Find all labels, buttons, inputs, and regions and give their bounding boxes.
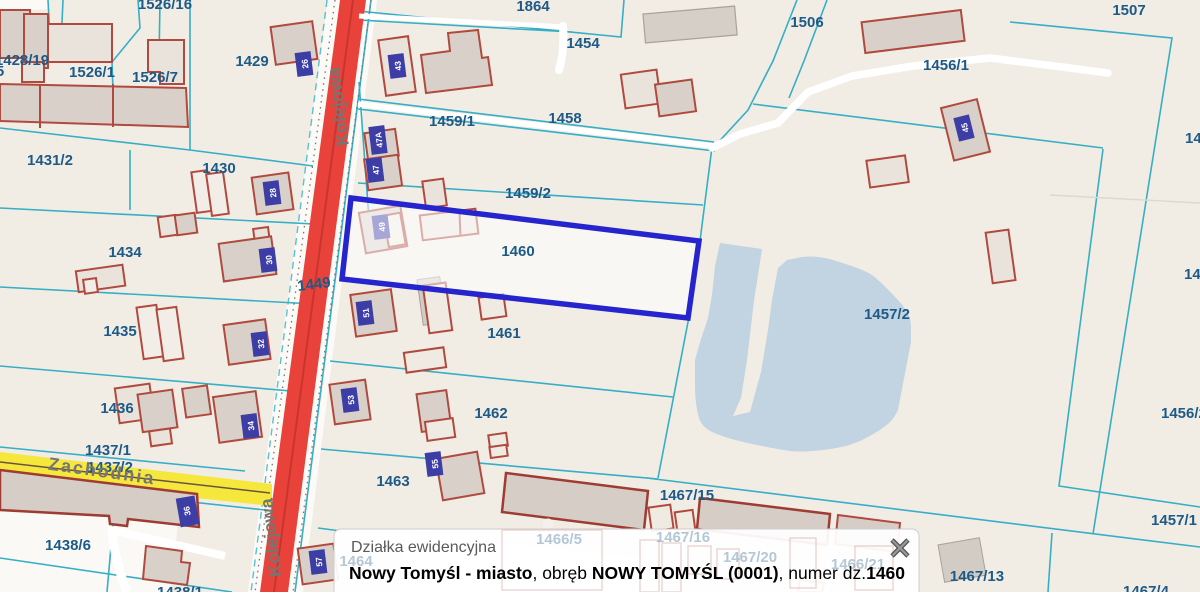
svg-text:55: 55 bbox=[429, 458, 440, 469]
svg-text:1466/5: 1466/5 bbox=[536, 531, 582, 548]
svg-text:1526/1: 1526/1 bbox=[69, 64, 115, 81]
svg-text:Nowy Tomyśl - miasto, obręb NO: Nowy Tomyśl - miasto, obręb NOWY TOMYŚL … bbox=[349, 562, 905, 583]
svg-text:1454: 1454 bbox=[566, 35, 600, 52]
svg-text:1462: 1462 bbox=[474, 405, 507, 422]
svg-text:1467/4: 1467/4 bbox=[1123, 583, 1170, 592]
svg-text:1460: 1460 bbox=[501, 243, 534, 260]
svg-text:1459/2: 1459/2 bbox=[505, 185, 551, 202]
svg-text:1437/1: 1437/1 bbox=[85, 442, 131, 459]
svg-text:1507: 1507 bbox=[1112, 2, 1145, 19]
svg-text:1526/7: 1526/7 bbox=[132, 69, 178, 86]
svg-text:1506: 1506 bbox=[790, 14, 823, 31]
svg-text:1431/2: 1431/2 bbox=[27, 152, 73, 169]
svg-text:1455: 1455 bbox=[1184, 266, 1200, 283]
svg-text:5: 5 bbox=[0, 63, 4, 80]
svg-text:1467/13: 1467/13 bbox=[950, 568, 1004, 585]
svg-text:53: 53 bbox=[345, 394, 356, 405]
svg-text:1457/1: 1457/1 bbox=[1151, 512, 1197, 529]
svg-text:47A: 47A bbox=[373, 132, 385, 149]
svg-text:1463: 1463 bbox=[376, 473, 409, 490]
svg-text:1461: 1461 bbox=[487, 325, 520, 342]
svg-text:26: 26 bbox=[299, 58, 310, 69]
svg-text:1864: 1864 bbox=[516, 0, 550, 15]
svg-text:1438/6: 1438/6 bbox=[45, 537, 91, 554]
svg-text:28: 28 bbox=[267, 187, 278, 198]
svg-text:1435: 1435 bbox=[103, 323, 136, 340]
svg-text:1456/1: 1456/1 bbox=[923, 57, 969, 74]
svg-text:1459/1: 1459/1 bbox=[429, 113, 475, 130]
svg-text:1456/2: 1456/2 bbox=[1161, 405, 1200, 422]
svg-text:1526/16: 1526/16 bbox=[138, 0, 192, 13]
svg-text:30: 30 bbox=[263, 254, 274, 265]
svg-text:1458: 1458 bbox=[548, 110, 581, 127]
svg-text:Działka ewidencyjna: Działka ewidencyjna bbox=[351, 539, 496, 556]
svg-text:1457/2: 1457/2 bbox=[864, 306, 910, 323]
svg-text:43: 43 bbox=[392, 60, 403, 71]
svg-text:1430: 1430 bbox=[202, 160, 235, 177]
svg-text:1438/1: 1438/1 bbox=[157, 584, 203, 592]
svg-text:1436: 1436 bbox=[100, 400, 133, 417]
svg-text:1459: 1459 bbox=[1185, 130, 1200, 147]
svg-text:1467/16: 1467/16 bbox=[656, 529, 710, 546]
svg-text:47: 47 bbox=[370, 164, 381, 175]
svg-text:1434: 1434 bbox=[108, 244, 142, 261]
svg-text:32: 32 bbox=[255, 338, 266, 349]
svg-text:51: 51 bbox=[360, 307, 371, 318]
svg-text:57: 57 bbox=[313, 556, 324, 567]
svg-text:36: 36 bbox=[181, 505, 193, 516]
svg-text:34: 34 bbox=[245, 420, 256, 431]
svg-text:1467/15: 1467/15 bbox=[660, 487, 714, 504]
svg-text:1429: 1429 bbox=[235, 53, 268, 70]
svg-text:1428/19: 1428/19 bbox=[0, 52, 49, 69]
